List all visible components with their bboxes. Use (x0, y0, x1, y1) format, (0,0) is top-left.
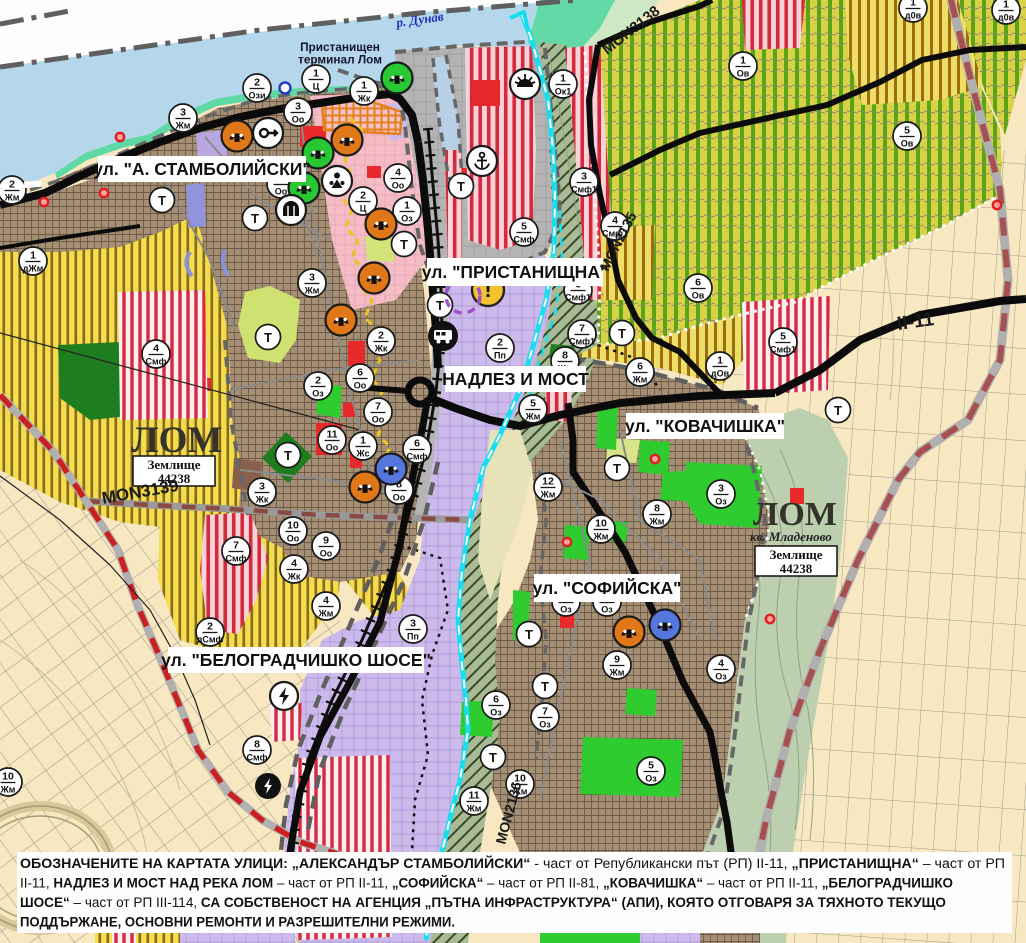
svg-text:Жм: Жм (593, 532, 609, 542)
svg-text:2: 2 (254, 77, 260, 89)
svg-text:Оо: Оо (354, 381, 367, 391)
svg-text:1: 1 (313, 68, 319, 80)
svg-text:12: 12 (542, 476, 554, 488)
svg-text:ПОДДЪРЖАНЕ, ОСНОВНИ РЕМОНТИ И: ПОДДЪРЖАНЕ, ОСНОВНИ РЕМОНТИ И РАЗРЕШИТЕЛ… (20, 915, 455, 930)
svg-text:6: 6 (357, 367, 363, 379)
svg-text:6: 6 (493, 694, 499, 706)
svg-text:1: 1 (1003, 0, 1009, 11)
svg-text:Т: Т (284, 448, 292, 463)
svg-text:Оо: Оо (320, 549, 333, 559)
svg-text:2: 2 (207, 621, 213, 633)
svg-text:1: 1 (740, 55, 746, 67)
svg-text:8: 8 (562, 350, 568, 362)
svg-text:Смф: Смф (407, 452, 428, 462)
svg-text:Оз: Оз (490, 708, 502, 718)
svg-text:Жм: Жм (632, 375, 648, 385)
svg-text:5: 5 (780, 331, 786, 343)
svg-text:3: 3 (180, 107, 186, 119)
svg-text:дСмф: дСмф (197, 635, 224, 645)
svg-text:3: 3 (295, 101, 301, 113)
svg-text:1: 1 (404, 200, 410, 212)
svg-text:1: 1 (30, 250, 36, 262)
svg-text:Т: Т (613, 461, 621, 476)
svg-text:Землище: Землище (769, 547, 822, 562)
svg-text:10: 10 (287, 520, 299, 532)
svg-text:3: 3 (259, 481, 265, 493)
svg-text:6: 6 (637, 361, 643, 373)
svg-text:Ок1: Ок1 (555, 87, 572, 97)
svg-text:Оз: Оз (715, 672, 727, 682)
svg-text:д0в: д0в (905, 11, 922, 21)
svg-text:4: 4 (718, 658, 724, 670)
svg-text:Смф: Смф (226, 554, 247, 564)
svg-text:Ов: Ов (737, 69, 750, 79)
svg-text:44238: 44238 (780, 561, 813, 576)
svg-text:Ози: Ози (248, 91, 265, 101)
svg-text:Оо: Оо (372, 415, 385, 425)
svg-text:7: 7 (233, 540, 239, 552)
svg-text:Землище: Землище (147, 457, 200, 472)
svg-text:2: 2 (497, 337, 503, 349)
svg-text:5: 5 (521, 221, 527, 233)
svg-text:Оз: Оз (645, 774, 657, 784)
svg-text:3: 3 (718, 483, 724, 495)
svg-text:Смф1: Смф1 (770, 345, 796, 355)
svg-text:терминал Лом: терминал Лом (298, 53, 382, 67)
svg-text:4: 4 (153, 343, 159, 355)
svg-text:Т: Т (541, 679, 549, 694)
svg-text:4: 4 (323, 595, 329, 607)
svg-text:Смф1: Смф1 (565, 293, 591, 303)
svg-text:Оз: Оз (539, 720, 551, 730)
svg-text:Смф: Смф (247, 753, 268, 763)
svg-text:Жм: Жм (609, 668, 625, 678)
svg-text:Ов: Ов (901, 139, 914, 149)
svg-text:Оо: Оо (393, 493, 406, 503)
svg-text:Т: Т (457, 179, 465, 194)
svg-text:Оо: Оо (392, 181, 405, 191)
svg-text:Т: Т (618, 326, 626, 341)
svg-text:Оз: Оз (560, 605, 572, 615)
svg-text:Жм: Жм (540, 490, 556, 500)
svg-text:ул. "ПРИСТАНИЩНА": ул. "ПРИСТАНИЩНА" (422, 262, 609, 282)
svg-text:Оз: Оз (401, 214, 413, 224)
svg-text:Пп: Пп (407, 632, 419, 642)
svg-text:2: 2 (9, 179, 15, 191)
svg-text:ОБОЗНАЧЕНИТЕ НА КАРТАТА УЛИЦИ:: ОБОЗНАЧЕНИТЕ НА КАРТАТА УЛИЦИ: „АЛЕКСАНД… (20, 856, 1005, 871)
svg-text:7: 7 (375, 401, 381, 413)
svg-text:7: 7 (579, 323, 585, 335)
svg-text:Оз: Оз (715, 497, 727, 507)
svg-text:ЛОМ: ЛОМ (753, 496, 837, 533)
svg-text:Смф1: Смф1 (569, 337, 595, 347)
svg-text:Т: Т (158, 193, 166, 208)
svg-text:2: 2 (315, 375, 321, 387)
svg-text:2: 2 (360, 190, 366, 202)
svg-text:2: 2 (378, 330, 384, 342)
svg-text:д0в: д0в (998, 13, 1015, 23)
svg-text:1: 1 (910, 0, 916, 9)
svg-text:4: 4 (291, 558, 297, 570)
svg-text:Жм: Жм (466, 804, 482, 814)
svg-text:5: 5 (530, 398, 536, 410)
svg-text:Пп: Пп (494, 351, 506, 361)
svg-text:8: 8 (254, 739, 260, 751)
svg-text:Оз: Оз (312, 389, 324, 399)
svg-text:ЛОМ: ЛОМ (131, 420, 222, 461)
svg-text:ул. "БЕЛОГРАДЧИШКО ШОСЕ": ул. "БЕЛОГРАДЧИШКО ШОСЕ" (161, 650, 431, 670)
svg-text:4: 4 (395, 167, 401, 179)
svg-text:Т: Т (525, 627, 533, 642)
svg-text:9: 9 (323, 535, 329, 547)
svg-text:Т: Т (489, 750, 497, 765)
svg-text:3: 3 (410, 618, 416, 630)
svg-text:дОв: дОв (711, 369, 730, 379)
svg-text:Т: Т (436, 298, 444, 313)
svg-text:Жм: Жм (175, 121, 191, 131)
svg-text:ул. "А. СТАМБОЛИЙСКИ": ул. "А. СТАМБОЛИЙСКИ" (93, 158, 310, 179)
svg-text:ул. "СОФИЙСКА": ул. "СОФИЙСКА" (533, 577, 682, 598)
svg-text:II-11, НАДЛЕЗ И МОСТ НАД РЕКА: II-11, НАДЛЕЗ И МОСТ НАД РЕКА ЛОМ – част… (20, 876, 953, 891)
svg-text:9: 9 (614, 654, 620, 666)
svg-text:Жм: Жм (4, 193, 20, 203)
svg-text:НАДЛЕЗ И МОСТ: НАДЛЕЗ И МОСТ (442, 369, 589, 389)
svg-text:Жк: Жк (374, 344, 388, 354)
svg-text:Смф: Смф (514, 235, 535, 245)
svg-text:Т: Т (251, 211, 259, 226)
svg-text:Т: Т (400, 237, 408, 252)
svg-text:дЖм: дЖм (23, 264, 44, 274)
svg-text:Ц: Ц (360, 204, 367, 214)
svg-text:Жк: Жк (255, 495, 269, 505)
svg-text:Оо: Оо (287, 534, 300, 544)
svg-text:1: 1 (560, 73, 566, 85)
svg-text:11: 11 (468, 790, 479, 802)
svg-text:Жм: Жм (318, 609, 334, 619)
svg-text:Жм: Жм (525, 412, 541, 422)
svg-text:Смф: Смф (146, 357, 167, 367)
svg-text:кв. Младеново: кв. Младеново (750, 529, 832, 544)
svg-text:10: 10 (595, 518, 607, 530)
svg-text:11: 11 (326, 429, 337, 441)
svg-text:ул. "КОВАЧИШКА": ул. "КОВАЧИШКА" (625, 416, 785, 436)
svg-text:Жм: Жм (0, 785, 16, 795)
svg-text:Жк: Жк (287, 572, 301, 582)
svg-text:ШОСЕ“ – част от РП III-114, СА: ШОСЕ“ – част от РП III-114, СА СОБСТВЕНО… (20, 895, 946, 910)
svg-text:5: 5 (648, 760, 654, 772)
svg-text:Ов: Ов (692, 291, 705, 301)
svg-text:1: 1 (717, 355, 723, 367)
svg-text:5: 5 (904, 125, 910, 137)
svg-text:Ц: Ц (313, 82, 320, 92)
svg-text:Т: Т (834, 403, 842, 418)
svg-text:3: 3 (309, 272, 315, 284)
svg-text:6: 6 (695, 277, 701, 289)
svg-text:Т: Т (264, 330, 272, 345)
svg-text:7: 7 (542, 706, 548, 718)
svg-text:Оо: Оо (326, 443, 339, 453)
svg-text:3: 3 (581, 171, 587, 183)
svg-text:Жм: Жм (304, 286, 320, 296)
svg-text:Жм: Жм (649, 517, 665, 527)
svg-text:Оо: Оо (292, 115, 305, 125)
svg-text:Жк: Жк (357, 94, 371, 104)
svg-text:Оз: Оз (601, 605, 613, 615)
svg-text:1: 1 (360, 435, 366, 447)
svg-text:10: 10 (2, 771, 14, 783)
svg-text:Смф1: Смф1 (571, 185, 597, 195)
svg-text:8: 8 (654, 503, 660, 515)
svg-text:6: 6 (414, 438, 420, 450)
svg-text:Жс: Жс (355, 449, 369, 459)
svg-text:1: 1 (361, 80, 367, 92)
